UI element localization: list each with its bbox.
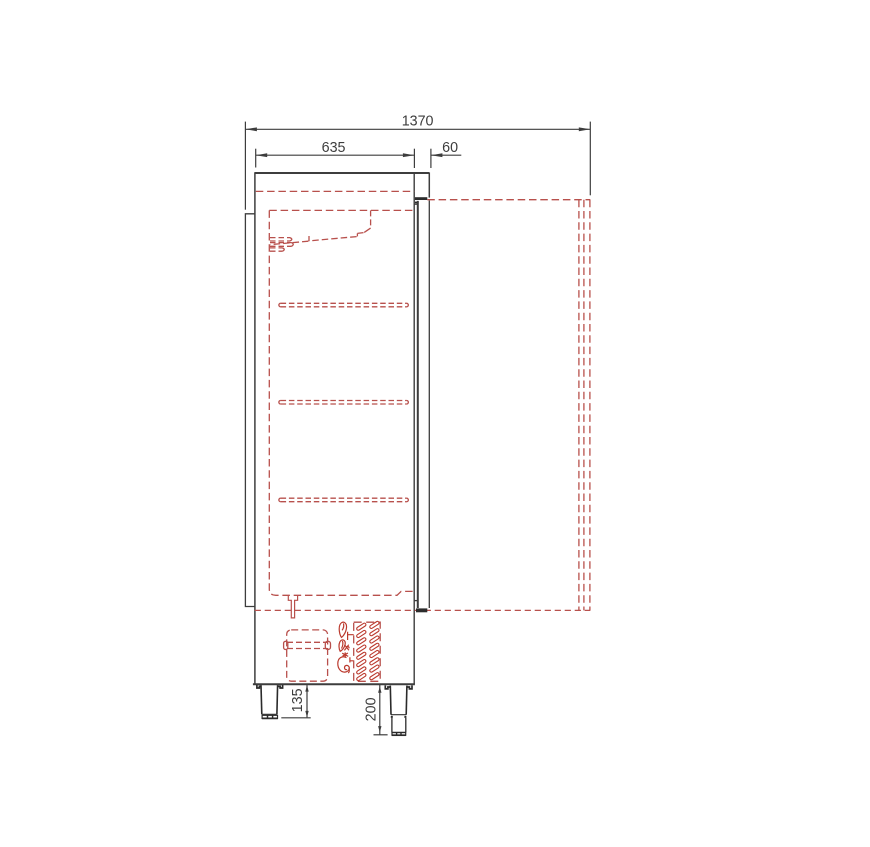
svg-text:135: 135 — [290, 688, 306, 712]
svg-text:200: 200 — [363, 697, 379, 721]
svg-text:635: 635 — [322, 140, 346, 156]
svg-text:60: 60 — [442, 140, 458, 156]
svg-text:1370: 1370 — [402, 114, 434, 130]
